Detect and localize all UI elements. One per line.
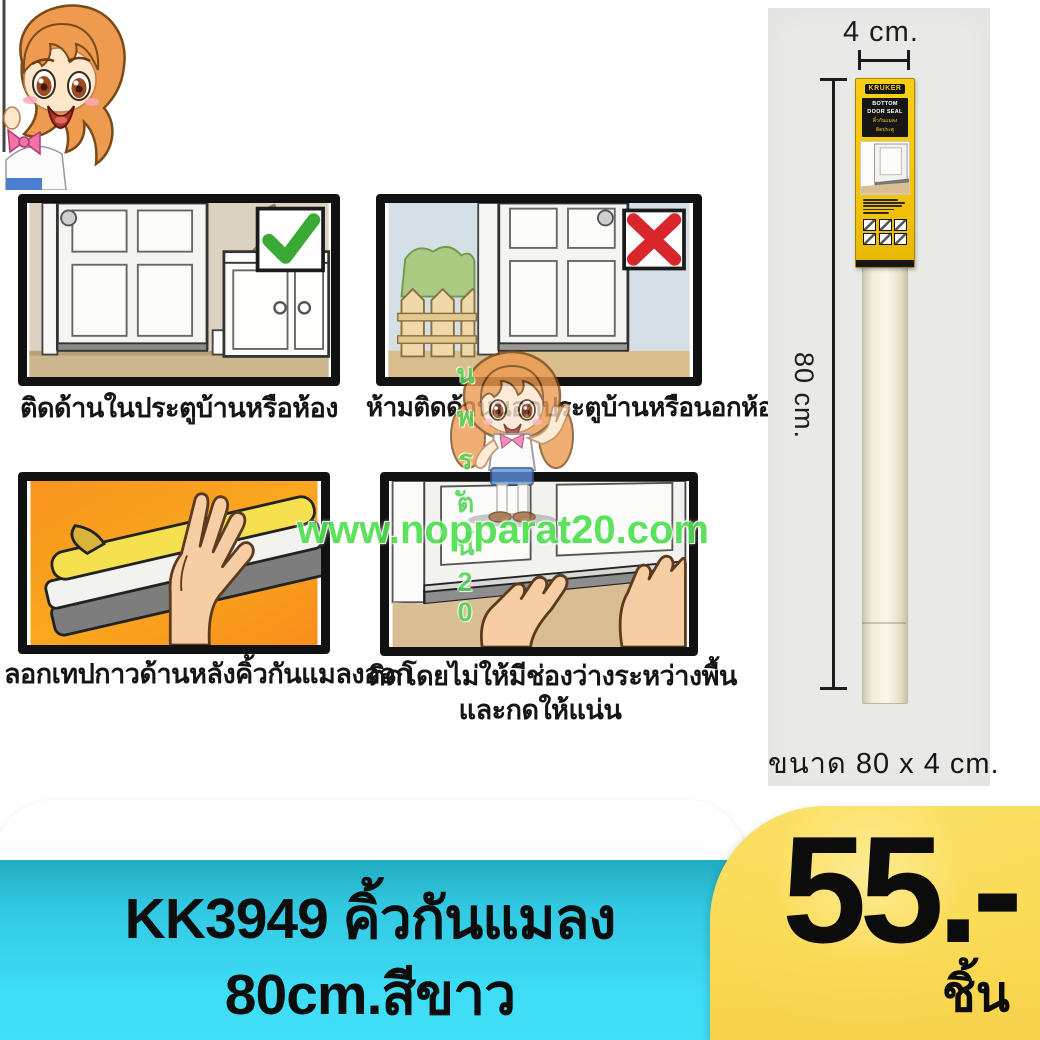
package-title-line2: DOOR SEAL xyxy=(864,109,906,116)
feature-icon xyxy=(879,233,892,245)
feature-icon xyxy=(879,219,892,231)
watermark-url-text: www.nopparat20.com xyxy=(288,508,718,553)
package-thai-line2: ติดประตู xyxy=(864,127,906,134)
strip-joint-line xyxy=(862,622,906,624)
package-title-line1: BOTTOM xyxy=(864,101,906,108)
height-dimension-label: 80 cm. xyxy=(788,352,819,439)
price-value: 55.- xyxy=(782,814,1016,966)
instruction-panel-inside xyxy=(18,194,340,386)
package-spec-text-lines xyxy=(863,198,907,216)
caption-peel: ลอกเทปกาวด้านหลังคิ้วกันแมลงออก xyxy=(4,658,346,690)
height-dimension-cap-top xyxy=(820,78,847,81)
brand-logo: KRUKER xyxy=(865,84,906,94)
package-bottom-bar xyxy=(856,260,914,267)
feature-icon xyxy=(863,219,876,231)
height-dimension-line xyxy=(832,78,835,690)
package-feature-icons xyxy=(863,219,907,246)
width-dimension-line xyxy=(858,59,910,62)
width-dimension-cap-left xyxy=(858,50,861,70)
package-label: KRUKER BOTTOM DOOR SEAL คิ้วกันแมลง ติดป… xyxy=(855,78,915,268)
instruction-panel-peel xyxy=(18,472,330,654)
product-title-line2: 80cm.สีขาว xyxy=(0,950,746,1040)
width-dimension-cap-right xyxy=(907,50,910,70)
door-inside-illustration xyxy=(27,203,331,377)
price-unit: ชิ้น xyxy=(942,955,1010,1034)
height-dimension-cap-bottom xyxy=(820,687,847,690)
cross-icon xyxy=(624,210,684,268)
caption-press-line2: และกดให้แน่น xyxy=(368,694,712,726)
feature-icon xyxy=(894,233,907,245)
product-ad-image: ติดด้านในประตูบ้านหรือห้อง xyxy=(0,0,1040,1040)
caption-press-line1: ติดโดยไม่ให้มีช่องว่างระหว่างพื้น xyxy=(368,660,712,692)
package-thai-line1: คิ้วกันแมลง xyxy=(864,118,906,125)
feature-icon xyxy=(894,219,907,231)
feature-icon xyxy=(863,233,876,245)
mascot-girl-corner xyxy=(0,0,132,190)
package-info-box: BOTTOM DOOR SEAL คิ้วกันแมลง ติดประตู xyxy=(862,98,908,136)
caption-inside: ติดด้านในประตูบ้านหรือห้อง xyxy=(8,392,350,424)
price-badge: 55.- ชิ้น xyxy=(710,806,1040,1040)
check-icon xyxy=(258,209,323,271)
width-dimension-label: 4 cm. xyxy=(843,16,919,49)
size-caption: ขนาด 80 x 4 cm. xyxy=(768,740,990,786)
peel-tape-illustration xyxy=(27,481,321,645)
girl-peeking-icon xyxy=(0,0,132,190)
package-photo-thumbnail xyxy=(860,141,910,195)
product-title-banner: KK3949 คิ้วกันแมลง 80cm.สีขาว xyxy=(0,800,746,1040)
